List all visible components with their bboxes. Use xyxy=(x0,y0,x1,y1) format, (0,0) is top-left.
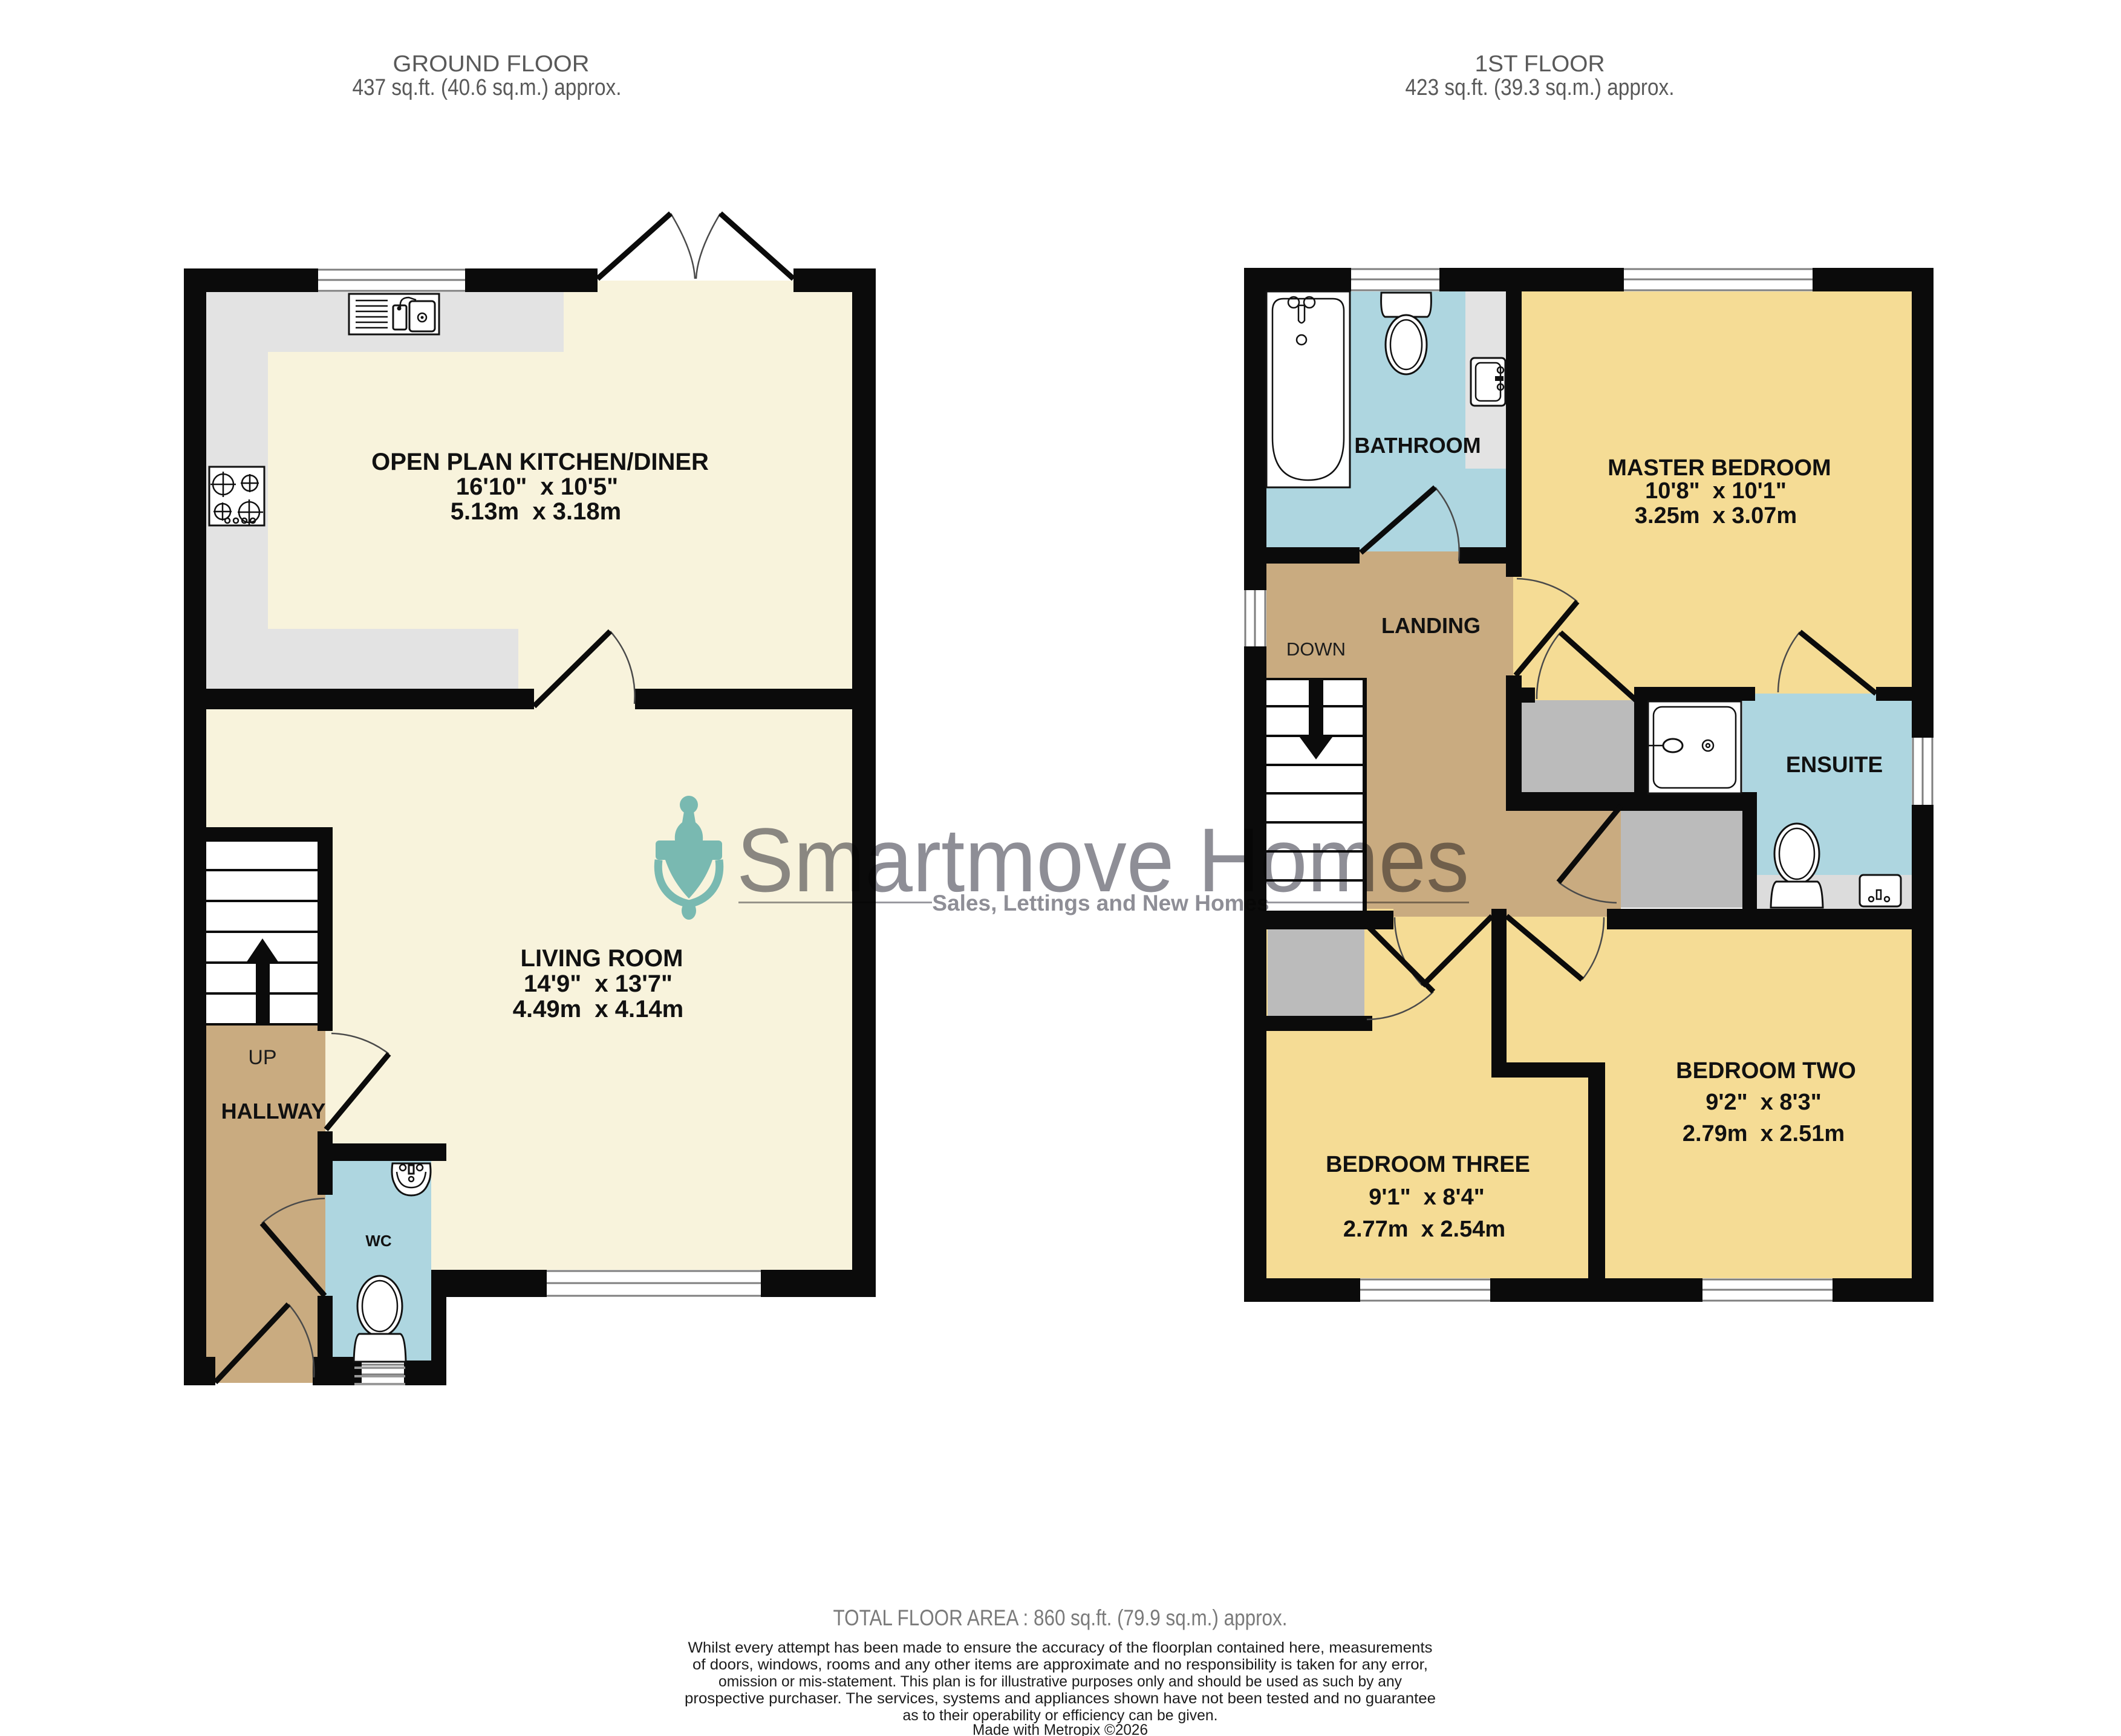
svg-text:ENSUITE: ENSUITE xyxy=(1786,752,1883,777)
svg-text:LIVING ROOM: LIVING ROOM xyxy=(521,945,683,972)
svg-text:UP: UP xyxy=(248,1046,276,1069)
svg-text:5.13m x 3.18m: 5.13m x 3.18m xyxy=(451,498,621,525)
svg-text:HALLWAY: HALLWAY xyxy=(221,1099,326,1123)
svg-text:BEDROOM TWO: BEDROOM TWO xyxy=(1676,1058,1856,1084)
svg-text:BEDROOM THREE: BEDROOM THREE xyxy=(1326,1152,1530,1177)
svg-text:2.77m x 2.54m: 2.77m x 2.54m xyxy=(1343,1217,1505,1242)
svg-text:437 sq.ft. (40.6 sq.m.) approx: 437 sq.ft. (40.6 sq.m.) approx. xyxy=(353,75,622,100)
svg-text:Sales, Lettings and New Homes: Sales, Lettings and New Homes xyxy=(932,891,1269,915)
svg-text:LANDING: LANDING xyxy=(1381,613,1481,638)
svg-text:9'2" x 8'3": 9'2" x 8'3" xyxy=(1706,1090,1821,1115)
svg-text:3.25m x 3.07m: 3.25m x 3.07m xyxy=(1635,503,1797,528)
svg-text:DOWN: DOWN xyxy=(1286,639,1346,660)
svg-text:OPEN PLAN KITCHEN/DINER: OPEN PLAN KITCHEN/DINER xyxy=(371,449,709,475)
svg-text:14'9" x 13'7": 14'9" x 13'7" xyxy=(524,970,673,997)
svg-text:Made with Metropix ©2026: Made with Metropix ©2026 xyxy=(973,1721,1148,1736)
svg-text:10'8" x 10'1": 10'8" x 10'1" xyxy=(1645,478,1787,504)
svg-text:prospective purchaser. The ser: prospective purchaser. The services, sys… xyxy=(685,1690,1436,1707)
svg-text:omission or mis-statement. Thi: omission or mis-statement. This plan is … xyxy=(718,1673,1402,1690)
svg-text:16'10" x 10'5": 16'10" x 10'5" xyxy=(456,473,618,500)
svg-text:423 sq.ft. (39.3 sq.m.) approx: 423 sq.ft. (39.3 sq.m.) approx. xyxy=(1406,75,1675,100)
svg-text:1ST FLOOR: 1ST FLOOR xyxy=(1475,51,1605,77)
svg-text:2.79m x 2.51m: 2.79m x 2.51m xyxy=(1683,1121,1845,1146)
svg-text:TOTAL FLOOR AREA : 860 sq.ft.: TOTAL FLOOR AREA : 860 sq.ft. (79.9 sq.m… xyxy=(833,1605,1288,1630)
svg-text:BATHROOM: BATHROOM xyxy=(1354,433,1481,458)
svg-text:9'1" x 8'4": 9'1" x 8'4" xyxy=(1369,1185,1484,1210)
svg-text:4.49m x 4.14m: 4.49m x 4.14m xyxy=(513,996,683,1022)
svg-text:Whilst every attempt has been: Whilst every attempt has been made to en… xyxy=(688,1639,1433,1656)
svg-text:WC: WC xyxy=(365,1232,392,1250)
svg-text:of doors, windows, rooms and a: of doors, windows, rooms and any other i… xyxy=(692,1656,1428,1673)
svg-text:GROUND FLOOR: GROUND FLOOR xyxy=(393,51,590,77)
svg-text:MASTER BEDROOM: MASTER BEDROOM xyxy=(1608,455,1831,481)
